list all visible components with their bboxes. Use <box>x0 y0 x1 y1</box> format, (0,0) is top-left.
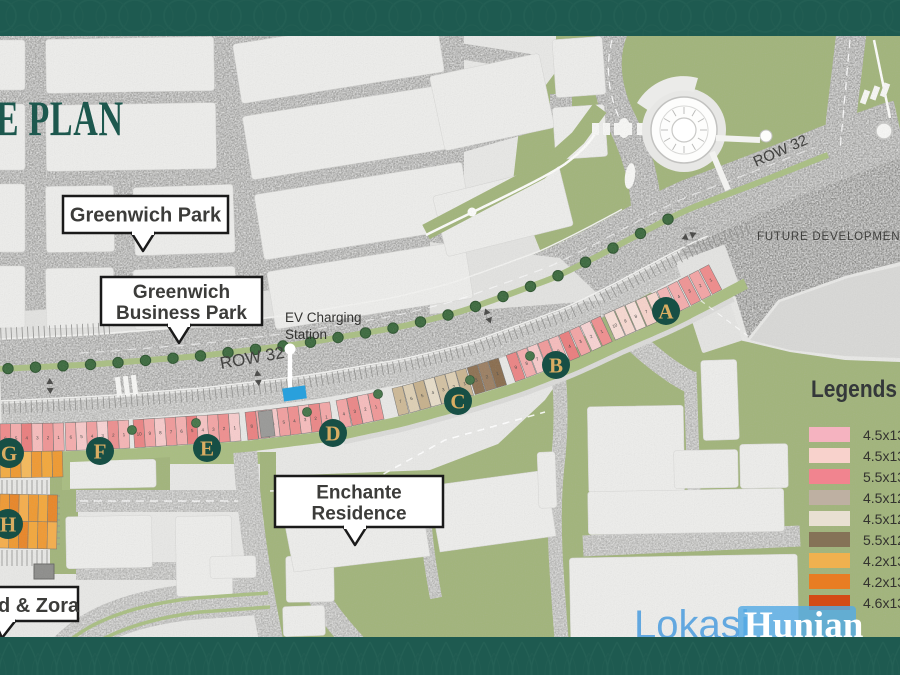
svg-text:Business Park: Business Park <box>116 303 247 324</box>
svg-text:B: B <box>549 354 563 378</box>
svg-text:Station: Station <box>285 327 327 342</box>
svg-text:4.2x13m: 4.2x13m <box>863 574 900 590</box>
svg-text:Greenwich: Greenwich <box>133 282 230 303</box>
svg-text:4.6x13m: 4.6x13m <box>863 595 900 611</box>
svg-text:4.5x12m: 4.5x12m <box>863 490 900 506</box>
svg-text:G: G <box>1 442 17 466</box>
svg-text:A: A <box>658 300 674 324</box>
svg-text:E PLAN: E PLAN <box>0 92 124 147</box>
svg-text:C: C <box>450 390 465 414</box>
svg-text:EV Charging: EV Charging <box>285 310 362 325</box>
svg-text:d & Zora: d & Zora <box>0 595 80 617</box>
svg-text:4.2x13m: 4.2x13m <box>863 553 900 569</box>
svg-text:4.5x12m: 4.5x12m <box>863 511 900 527</box>
svg-text:D: D <box>325 422 340 446</box>
svg-text:5.5x12m: 5.5x12m <box>863 532 900 548</box>
svg-text:E: E <box>200 437 214 461</box>
svg-text:F: F <box>94 440 107 464</box>
svg-text:Legends: Legends <box>811 376 897 403</box>
svg-text:Greenwich Park: Greenwich Park <box>70 205 222 227</box>
svg-text:Enchante: Enchante <box>316 483 402 504</box>
svg-text:4.5x13m: 4.5x13m <box>863 427 900 443</box>
svg-text:H: H <box>0 513 16 537</box>
svg-text:5.5x13m: 5.5x13m <box>863 469 900 485</box>
svg-text:Residence: Residence <box>311 504 406 525</box>
svg-text:4.5x13m: 4.5x13m <box>863 448 900 464</box>
svg-text:FUTURE DEVELOPMENT: FUTURE DEVELOPMENT <box>757 231 900 243</box>
